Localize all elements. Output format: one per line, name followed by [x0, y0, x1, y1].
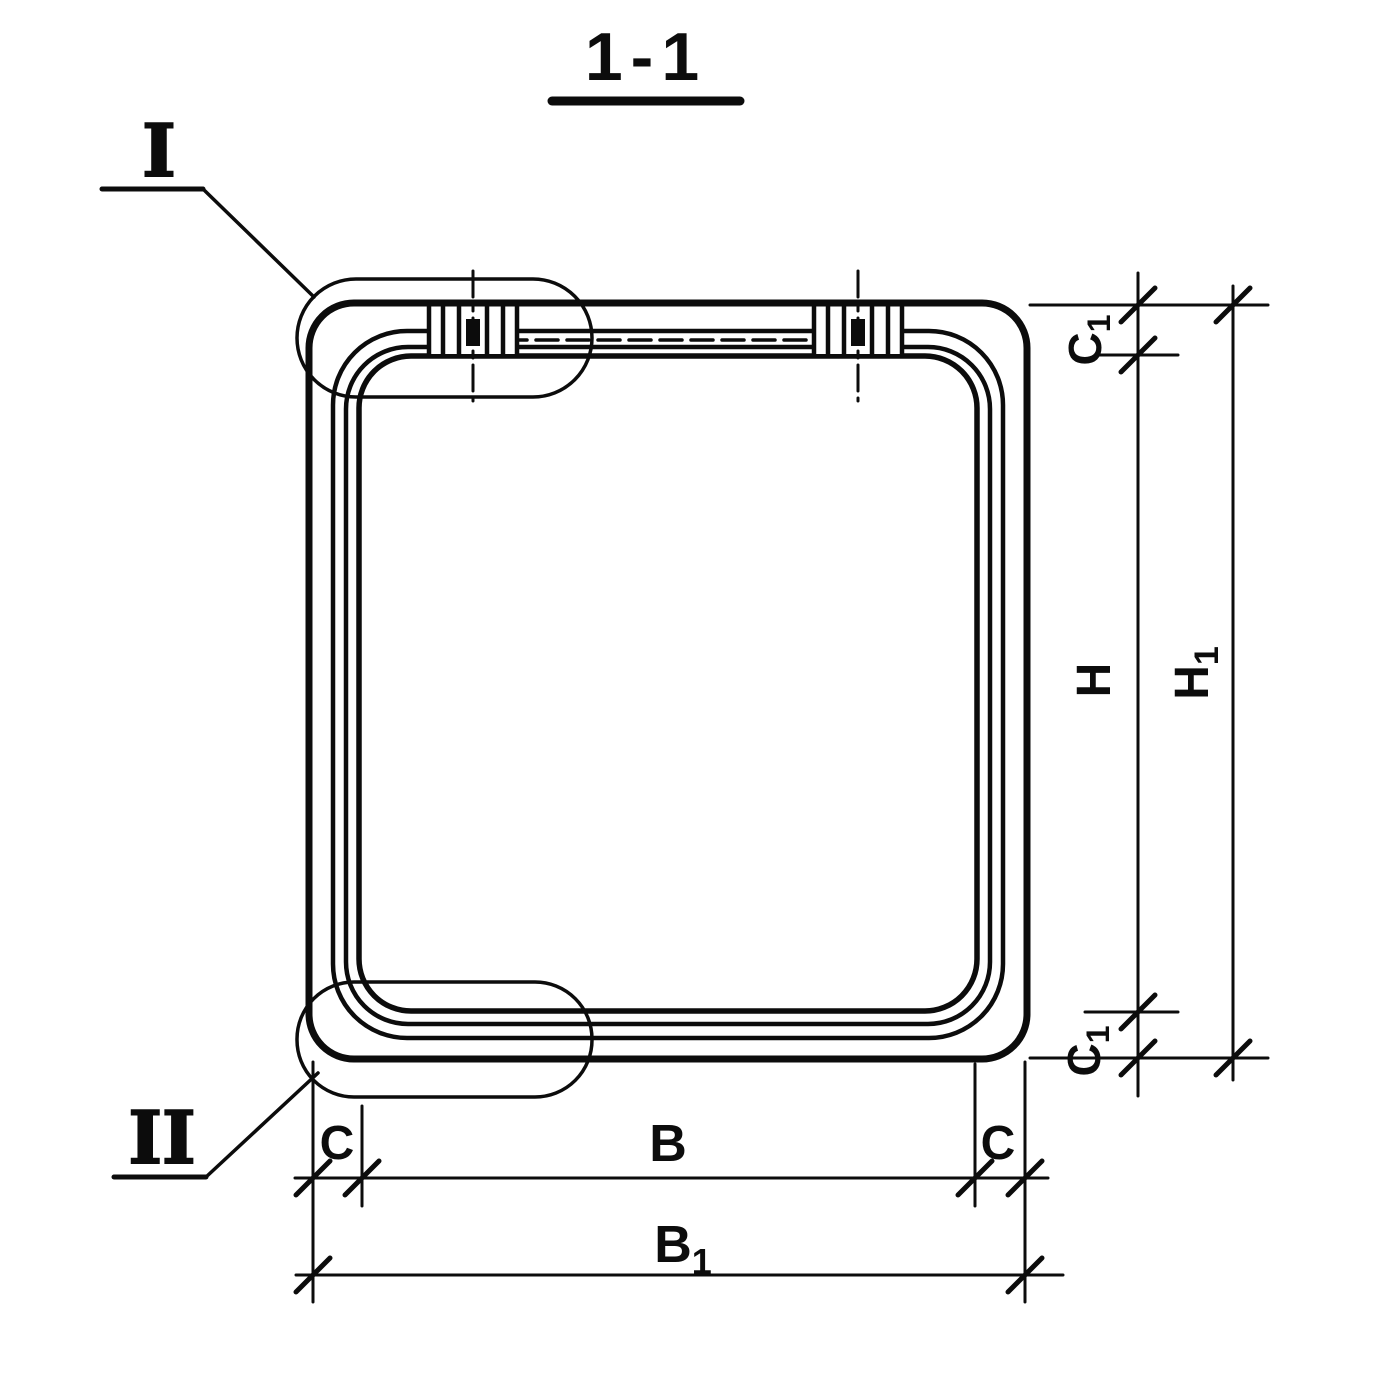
dim-label-c-left: C — [320, 1117, 355, 1170]
frame-outer-contour — [309, 303, 1027, 1059]
detail-callout-2: II — [114, 1073, 318, 1180]
dim-label-c1-bottom: C1 — [1058, 1025, 1116, 1076]
keyed-joint-right — [812, 271, 904, 401]
detail-ii-leader-line — [206, 1073, 318, 1177]
detail-i-leader-line — [203, 189, 314, 297]
drawing-sheet: 1-1 I II — [0, 0, 1374, 1379]
section-drawing: 1-1 I II — [0, 0, 1374, 1379]
dim-label-c-right: C — [981, 1117, 1016, 1170]
section-title: 1-1 — [585, 19, 707, 95]
detail-ii-label: II — [128, 1095, 195, 1180]
dim-label-b: B — [649, 1115, 687, 1173]
detail-callout-1: I — [102, 108, 314, 297]
keyed-joint-left — [427, 271, 519, 401]
frame-inner-contour-1 — [333, 331, 1003, 1038]
frame-inner-contour-3 — [359, 356, 977, 1011]
dim-label-h: H — [1068, 663, 1121, 698]
dim-label-h1: H1 — [1166, 646, 1226, 700]
frame-inner-contour-2 — [346, 347, 990, 1024]
right-dimension-set: C1 H H1 C1 — [1030, 273, 1268, 1096]
dim-label-b1: B1 — [654, 1216, 712, 1282]
frame-section — [309, 303, 1027, 1059]
dim-label-c1-top: C1 — [1059, 314, 1117, 365]
detail-i-label: I — [142, 108, 176, 193]
